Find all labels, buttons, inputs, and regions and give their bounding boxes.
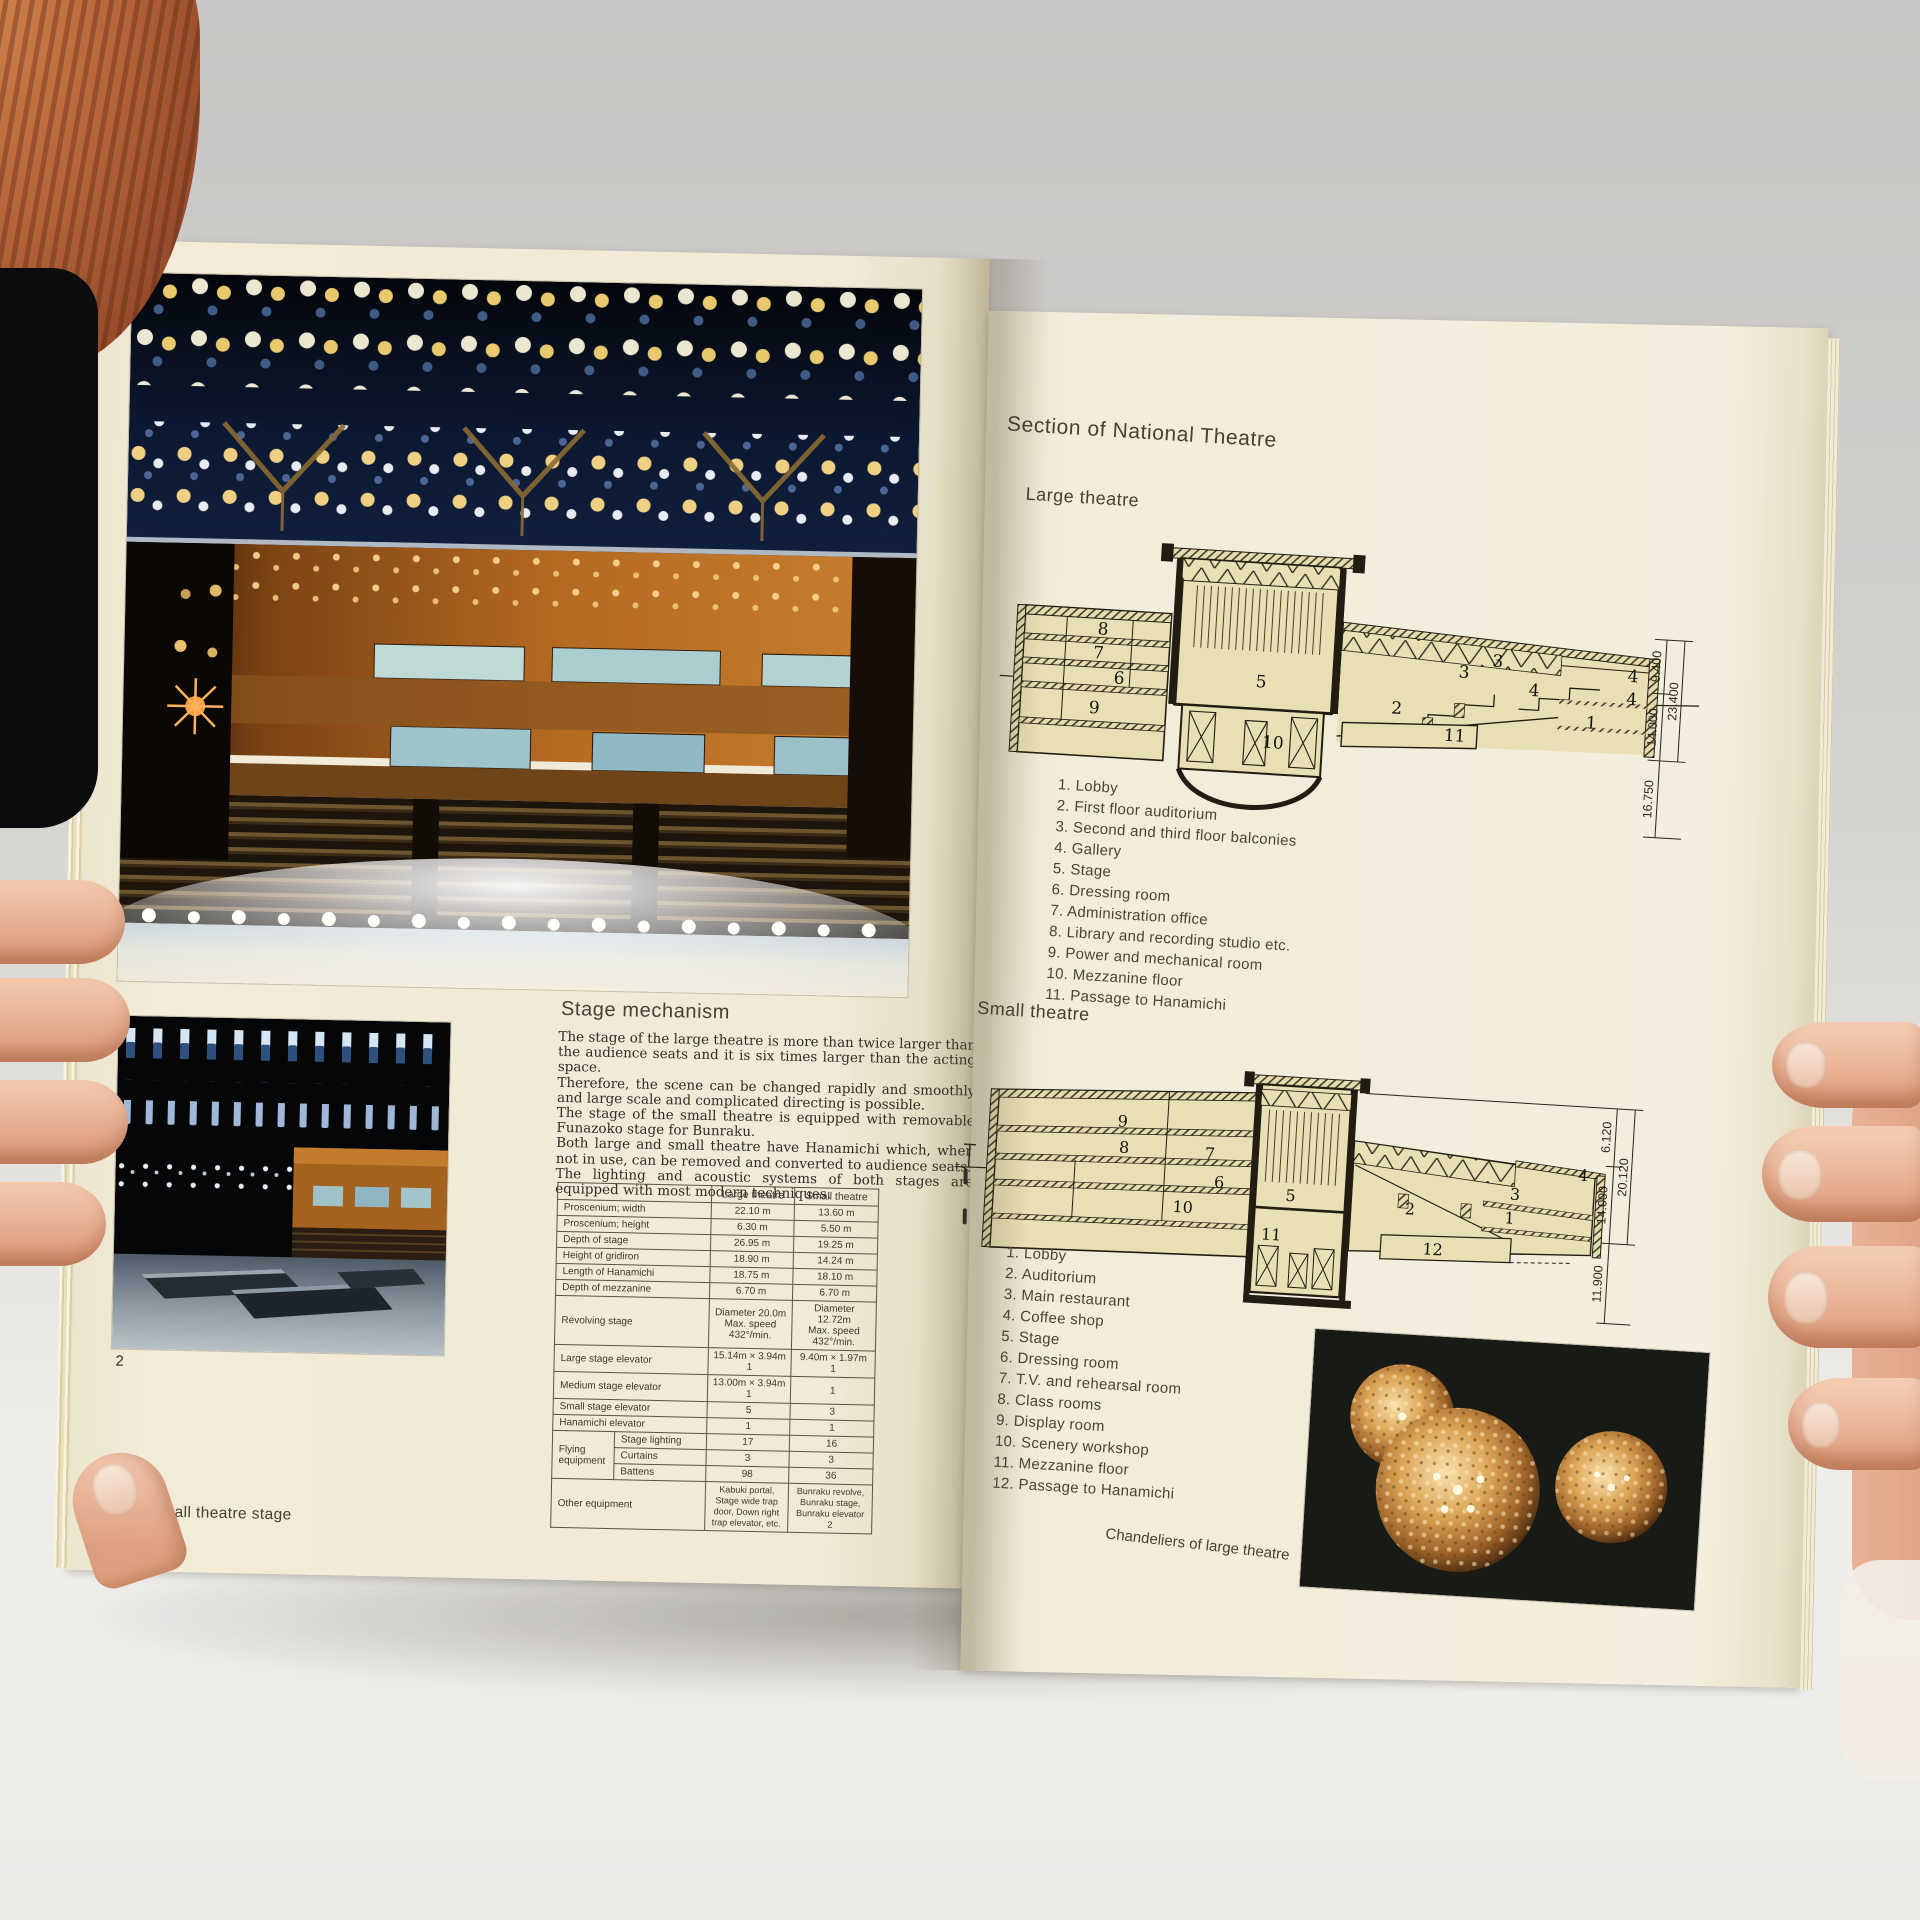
room-label: 1 xyxy=(1504,1208,1515,1228)
chandeliers-photo-art xyxy=(1300,1329,1710,1611)
room-label: 2 xyxy=(1404,1199,1415,1219)
large-theatre-photo xyxy=(117,273,922,997)
room-label: 4 xyxy=(1627,667,1639,688)
room-label: 8 xyxy=(1118,1138,1129,1158)
room-label: 1 xyxy=(1585,713,1597,734)
table-row: Other equipment Kabuki portal, Stage wid… xyxy=(551,1478,873,1534)
dim-6120: 6.120 xyxy=(1599,1121,1615,1153)
large-theatre-photo-art xyxy=(117,273,922,997)
distant-auditorium xyxy=(292,1147,448,1260)
right-wrist xyxy=(1840,1560,1920,1780)
stage-mechanism-heading: Stage mechanism xyxy=(561,998,731,1025)
staple xyxy=(963,1208,967,1224)
room-label: 5 xyxy=(1255,672,1267,693)
small-theatre-photo xyxy=(112,1016,451,1356)
table-row: Revolving stage Diameter 20.0mMax. speed… xyxy=(554,1295,876,1351)
col-small-theatre: Small theatre xyxy=(795,1187,879,1206)
room-label: 3 xyxy=(1458,662,1470,683)
room-label: 4 xyxy=(1578,1166,1589,1186)
large-theatre-legend: 1. Lobby 2. First floor auditorium 3. Se… xyxy=(1045,776,1300,1021)
open-book: 2 Stage mechanism The stage of the large… xyxy=(65,232,1830,1698)
room-label: 11 xyxy=(1443,726,1466,747)
right-page: Section of National Theatre Large theatr… xyxy=(960,311,1828,1688)
chandeliers-caption: Chandeliers of large theatre xyxy=(1105,1525,1291,1563)
room-label: 7 xyxy=(1093,643,1105,664)
room-label: 4 xyxy=(1528,681,1540,702)
col-large-theatre: Large theatre xyxy=(711,1186,795,1205)
room-label: 7 xyxy=(1204,1144,1215,1164)
dim-14000-small: 14.000 xyxy=(1594,1186,1610,1225)
room-label: 5 xyxy=(1285,1186,1296,1206)
room-label: 8 xyxy=(1097,619,1109,640)
dim-14000: 14.000 xyxy=(1645,708,1661,747)
stage-spec-table: Large theatre Small theatre Proscenium; … xyxy=(550,1182,879,1535)
room-label: 6 xyxy=(1214,1172,1225,1192)
photo-of-open-brochure: 2 Stage mechanism The stage of the large… xyxy=(0,0,1920,1920)
chandeliers-photo xyxy=(1300,1329,1710,1611)
room-label: 3 xyxy=(1509,1185,1520,1205)
black-sleeve xyxy=(0,268,98,828)
room-label: 12 xyxy=(1422,1239,1443,1259)
room-label: 9 xyxy=(1117,1111,1128,1131)
room-label: 10 xyxy=(1261,733,1284,754)
room-label: 2 xyxy=(1391,698,1403,719)
right-page-title: Section of National Theatre xyxy=(1006,412,1277,452)
small-theatre-photo-art xyxy=(112,1016,451,1356)
room-label: 10 xyxy=(1172,1197,1193,1217)
dim-23400: 23.400 xyxy=(1665,682,1681,721)
figure-number-2: 2 xyxy=(115,1353,124,1370)
staple xyxy=(963,1168,967,1184)
dim-20120: 20.120 xyxy=(1615,1158,1631,1197)
room-label: 9 xyxy=(1088,698,1100,719)
left-page: 2 Stage mechanism The stage of the large… xyxy=(67,240,990,1588)
room-label: 3 xyxy=(1492,651,1504,672)
dim-11900: 11.900 xyxy=(1589,1265,1605,1303)
room-label: 6 xyxy=(1113,668,1125,689)
room-label: 11 xyxy=(1260,1224,1281,1244)
dim-9400: 9.400 xyxy=(1648,650,1664,682)
dim-16750: 16.750 xyxy=(1640,780,1656,819)
stage-mechanism-text: The stage of the large theatre is more t… xyxy=(555,1030,976,1206)
room-label: 4 xyxy=(1626,690,1638,711)
